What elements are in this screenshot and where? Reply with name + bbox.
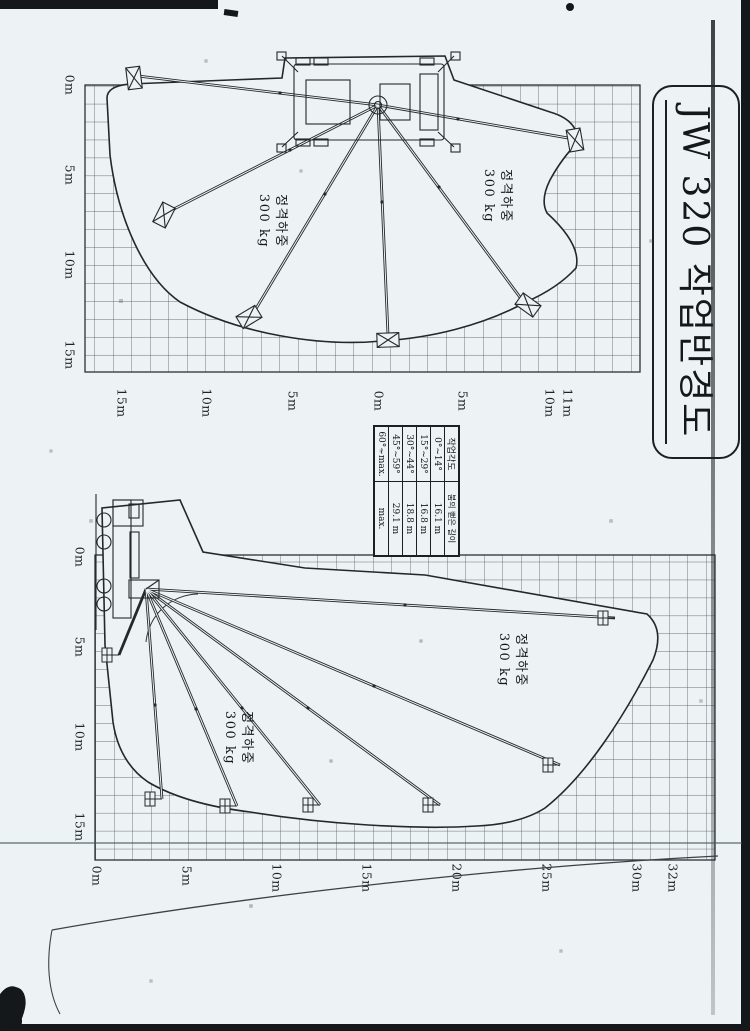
scan-noise-speckles bbox=[0, 0, 2, 2]
scan-artifact-page-edge bbox=[0, 0, 750, 1031]
scanned-document-page: JW 320 작업반경도 bbox=[0, 0, 750, 1031]
